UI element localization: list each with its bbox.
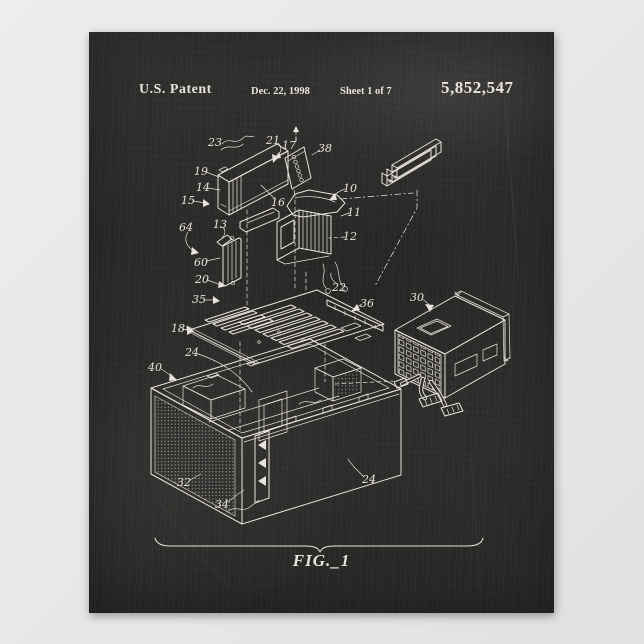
ref-numeral-21: 21 [265,134,280,147]
ref-numeral-40: 40 [147,361,162,374]
ref-numeral-35: 35 [192,293,206,306]
ref-numeral-60: 60 [194,256,208,269]
alignment-dash-lines [240,190,417,430]
poster-matte: U.S. Patent Dec. 22, 1998 Sheet 1 of 7 5… [0,0,644,644]
connector-card-38 [285,126,311,196]
ref-numeral-38: 38 [318,142,332,155]
ref-numeral-14: 14 [196,181,210,194]
cpu-heatsink-assembly [277,190,347,293]
ref-numeral-11: 11 [347,206,361,219]
ref-numeral-22: 22 [331,281,346,294]
ref-numeral-17: 17 [282,139,296,152]
patent-poster: U.S. Patent Dec. 22, 1998 Sheet 1 of 7 5… [89,32,554,613]
ref-numeral-19: 19 [194,165,208,178]
ref-numeral-10: 10 [343,182,357,195]
memory-modules [382,139,441,186]
power-supply [395,291,510,398]
ref-numeral-16: 16 [271,196,285,209]
ref-numeral-24-upper: 24 [184,346,199,359]
figure-label: FIG._1 [89,551,554,571]
ref-numeral-64: 64 [179,221,193,234]
chassis [151,339,401,524]
ref-numeral-24-lower: 24 [361,473,376,486]
ref-numeral-30: 30 [410,291,424,304]
ref-numeral-15: 15 [181,194,195,207]
ref-numeral-36: 36 [360,297,374,310]
chalk-scratches [159,102,518,592]
ref-numeral-12: 12 [343,230,357,243]
figure-brace [155,538,483,552]
ref-numeral-32: 32 [177,476,191,489]
ref-numeral-20: 20 [194,273,209,286]
ref-numeral-18: 18 [171,322,185,335]
patent-drawing: 23 21 17 38 19 14 15 16 10 11 12 64 13 6… [89,32,554,613]
ref-numeral-13: 13 [213,218,227,231]
ref-numeral-34: 34 [215,498,229,511]
ref-numeral-23: 23 [207,136,222,149]
